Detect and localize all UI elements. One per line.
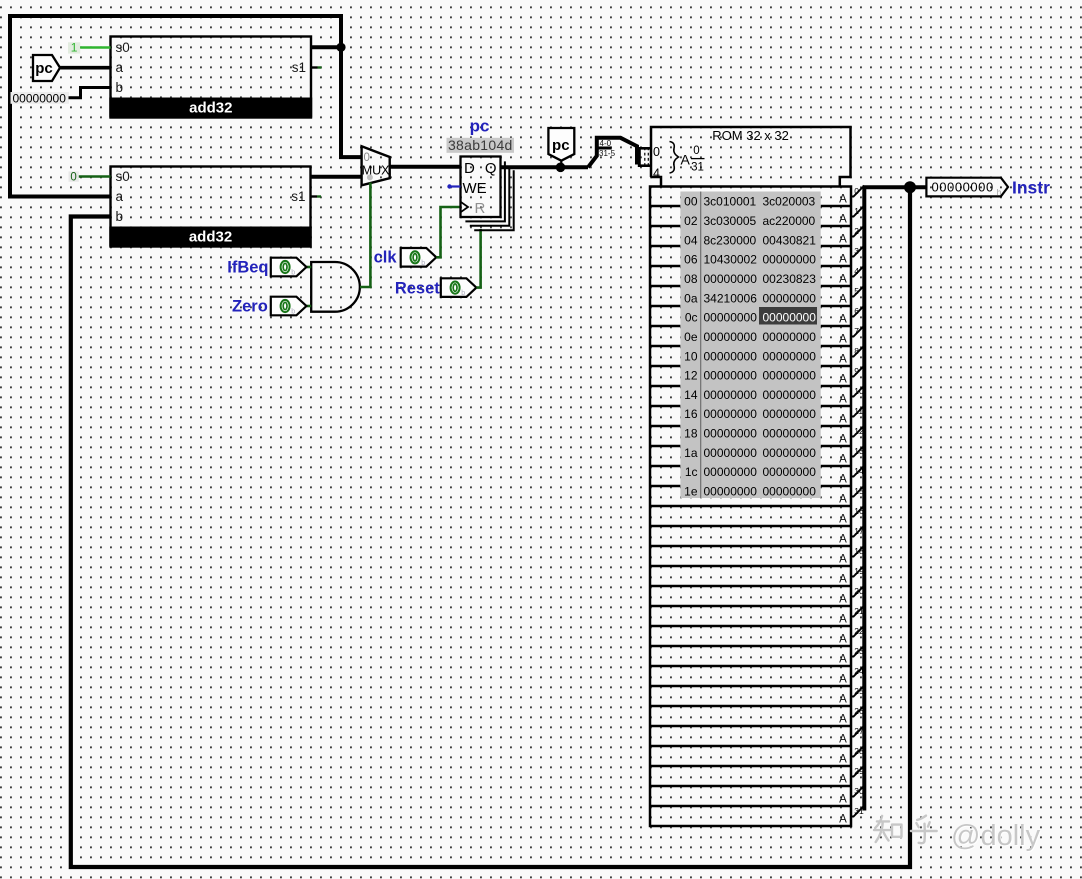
svg-text:b: b	[461, 290, 465, 297]
svg-text:00000000: 00000000	[704, 427, 758, 441]
svg-text:A: A	[839, 474, 847, 486]
svg-text:00000000: 00000000	[763, 485, 817, 499]
svg-text:5: 5	[854, 286, 859, 296]
svg-text:00000000: 00000000	[932, 180, 994, 195]
svg-text:34210006: 34210006	[704, 291, 758, 305]
svg-text:00230823: 00230823	[763, 272, 817, 286]
svg-text:A: A	[839, 654, 847, 666]
svg-text:3: 3	[854, 246, 859, 256]
svg-text:00000000: 00000000	[763, 253, 817, 267]
svg-text:pc: pc	[470, 117, 490, 136]
svg-text:04: 04	[684, 233, 698, 247]
svg-text:b: b	[291, 309, 295, 316]
svg-text:A: A	[839, 614, 847, 626]
svg-text:0: 0	[693, 145, 699, 157]
svg-text:00430821: 00430821	[763, 233, 817, 247]
svg-text:@dolly: @dolly	[951, 820, 1041, 852]
svg-text:A: A	[839, 774, 847, 786]
svg-text:1: 1	[71, 41, 78, 55]
svg-text:s1: s1	[291, 189, 305, 204]
svg-text:Zero: Zero	[232, 298, 268, 316]
svg-text:IfBeq: IfBeq	[227, 259, 268, 277]
svg-text:8: 8	[854, 346, 859, 356]
svg-text:a: a	[116, 60, 124, 75]
svg-text:00000000: 00000000	[763, 446, 817, 460]
svg-text:A: A	[839, 234, 847, 246]
svg-text:3c020003: 3c020003	[763, 195, 816, 209]
svg-text:pc: pc	[552, 137, 570, 154]
svg-text:14: 14	[684, 388, 698, 402]
svg-text:3c030005: 3c030005	[704, 214, 757, 228]
svg-text:4: 4	[854, 266, 859, 276]
svg-text:00000000: 00000000	[704, 446, 758, 460]
svg-text:00000000: 00000000	[704, 465, 758, 479]
svg-text:00000000: 00000000	[704, 407, 758, 421]
svg-text:A: A	[839, 494, 847, 506]
svg-text:02: 02	[684, 214, 698, 228]
svg-text:9: 9	[854, 366, 859, 376]
svg-text:06: 06	[684, 253, 698, 267]
svg-text:h: h	[997, 188, 1001, 197]
svg-text:A: A	[681, 151, 691, 167]
svg-text:A: A	[839, 454, 847, 466]
svg-text:A: A	[839, 214, 847, 226]
svg-text:1a: 1a	[684, 446, 698, 460]
svg-text:A: A	[839, 334, 847, 346]
svg-text:A: A	[839, 734, 847, 746]
svg-text:00000000: 00000000	[704, 311, 758, 325]
svg-text:12: 12	[684, 369, 698, 383]
svg-text:0: 0	[653, 145, 660, 159]
svg-text:00000000: 00000000	[763, 407, 817, 421]
svg-text:0: 0	[70, 171, 76, 183]
svg-text:00000000: 00000000	[704, 369, 758, 383]
svg-text:1c: 1c	[685, 465, 698, 479]
svg-text:00000000: 00000000	[763, 369, 817, 383]
svg-text:A: A	[839, 434, 847, 446]
svg-text:R: R	[475, 200, 486, 217]
svg-text:s0: s0	[116, 40, 130, 55]
svg-text:08: 08	[684, 272, 698, 286]
svg-text:7: 7	[854, 326, 859, 336]
svg-text:00000000: 00000000	[704, 272, 758, 286]
svg-text:0: 0	[854, 186, 859, 196]
svg-text:16: 16	[684, 407, 698, 421]
svg-text:0e: 0e	[684, 330, 698, 344]
svg-text:A: A	[839, 694, 847, 706]
svg-text:6: 6	[854, 306, 859, 316]
svg-text:00000000: 00000000	[704, 388, 758, 402]
svg-text:A: A	[839, 414, 847, 426]
svg-text:38ab104d: 38ab104d	[448, 137, 513, 153]
svg-text:10430002: 10430002	[704, 253, 758, 267]
svg-text:s1: s1	[292, 60, 306, 75]
svg-text:A: A	[839, 394, 847, 406]
svg-text:00000000: 00000000	[763, 388, 817, 402]
svg-text:4: 4	[653, 166, 660, 180]
svg-text:MUX: MUX	[362, 163, 390, 177]
svg-text:00000000: 00000000	[763, 330, 817, 344]
svg-text:1: 1	[854, 206, 859, 216]
svg-text:WE: WE	[463, 180, 487, 197]
svg-text:b: b	[291, 270, 295, 277]
svg-text:A: A	[839, 514, 847, 526]
svg-text:s0: s0	[116, 169, 130, 184]
svg-text:A: A	[839, 554, 847, 566]
svg-text:00000000: 00000000	[13, 91, 67, 105]
svg-text:0a: 0a	[684, 291, 698, 305]
svg-text:add32: add32	[189, 228, 232, 245]
svg-text:00000000: 00000000	[763, 349, 817, 363]
svg-text:0: 0	[364, 152, 370, 164]
svg-text:4-0: 4-0	[600, 139, 612, 148]
svg-text:00000000: 00000000	[763, 291, 817, 305]
svg-text:A: A	[839, 254, 847, 266]
svg-text:A: A	[839, 354, 847, 366]
svg-text:A: A	[839, 594, 847, 606]
svg-text:ac220000: ac220000	[763, 214, 816, 228]
svg-text:2: 2	[854, 226, 859, 236]
svg-text:a: a	[116, 189, 124, 204]
svg-text:clk: clk	[374, 249, 398, 267]
svg-text:3c010001: 3c010001	[704, 195, 757, 209]
svg-text:1e: 1e	[684, 485, 698, 499]
svg-text:A: A	[839, 534, 847, 546]
svg-text:18: 18	[684, 427, 698, 441]
svg-text:00000000: 00000000	[763, 311, 817, 325]
svg-text:00: 00	[684, 195, 698, 209]
svg-text:Q: Q	[485, 160, 497, 177]
svg-text:A: A	[839, 294, 847, 306]
svg-text:31: 31	[691, 161, 704, 173]
svg-text:pc: pc	[35, 60, 53, 77]
svg-text:00000000: 00000000	[763, 465, 817, 479]
svg-text:A: A	[839, 374, 847, 386]
svg-text:ROM 32 x 32: ROM 32 x 32	[712, 128, 789, 143]
svg-text:31-5: 31-5	[599, 149, 616, 158]
svg-text:add32: add32	[189, 99, 232, 116]
svg-text:00000000: 00000000	[704, 330, 758, 344]
svg-text:Instr: Instr	[1012, 177, 1050, 197]
svg-text:A: A	[839, 814, 847, 826]
svg-text:b: b	[116, 80, 124, 95]
svg-text:00000000: 00000000	[704, 349, 758, 363]
svg-text:Reset: Reset	[395, 280, 440, 298]
svg-text:A: A	[839, 794, 847, 806]
svg-text:A: A	[839, 634, 847, 646]
svg-text:A: A	[839, 754, 847, 766]
svg-text:11: 11	[854, 406, 863, 416]
svg-text:b: b	[421, 260, 425, 267]
svg-text:D: D	[464, 160, 475, 177]
svg-text:b: b	[116, 209, 124, 224]
svg-text:00000000: 00000000	[763, 427, 817, 441]
svg-text:0c: 0c	[685, 311, 698, 325]
svg-text:A: A	[839, 314, 847, 326]
svg-text:8c230000: 8c230000	[704, 233, 757, 247]
svg-text:A: A	[839, 574, 847, 586]
svg-text:A: A	[839, 274, 847, 286]
svg-text:10: 10	[684, 349, 698, 363]
svg-text:A: A	[839, 674, 847, 686]
svg-text:A: A	[839, 194, 847, 206]
svg-text:A: A	[839, 714, 847, 726]
svg-text:00000000: 00000000	[704, 485, 758, 499]
